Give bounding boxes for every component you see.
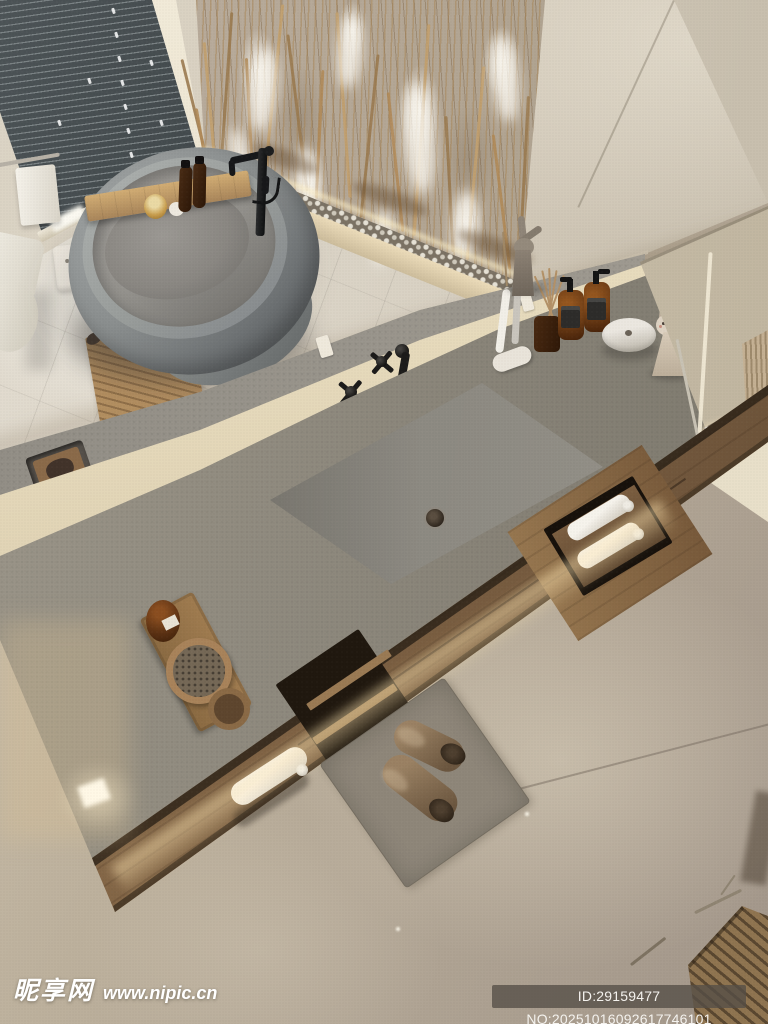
bottle-cap xyxy=(195,156,204,164)
hanging-towel xyxy=(15,164,61,226)
reed-diffuser-jar xyxy=(534,316,560,352)
sink-drain xyxy=(424,507,446,529)
floor-speck xyxy=(525,812,529,816)
bathroom-render: 昵享网 www.nipic.cn ID:29159477 NO:20251016… xyxy=(0,0,768,1024)
dispenser-pump-spout xyxy=(598,269,610,274)
dispenser-label xyxy=(587,298,606,320)
tap-hub xyxy=(376,356,387,367)
watermark-id-badge: ID:29159477 NO:20251016092617746101 xyxy=(492,985,746,1008)
ceramic-box-hole xyxy=(625,330,632,336)
candle-jar xyxy=(144,194,167,219)
towel-roll-end xyxy=(622,500,634,512)
amber-bottle xyxy=(193,162,207,208)
bottle-cap xyxy=(181,160,190,168)
handshower xyxy=(262,176,270,194)
watermark-site: 昵享网 www.nipic.cn xyxy=(13,976,217,1006)
tray-dish xyxy=(208,688,250,730)
floor-speck xyxy=(396,927,400,931)
rabbit-sculpture-body xyxy=(512,250,534,296)
floor-faucet-spout xyxy=(228,160,235,176)
floor-faucet-handle xyxy=(264,146,274,156)
watermark-site-url: www.nipic.cn xyxy=(103,983,217,1004)
watermark-site-name: 昵享网 xyxy=(13,976,94,1006)
amber-bottle xyxy=(178,166,193,212)
bunny-blush xyxy=(659,325,662,328)
dispenser-label xyxy=(561,306,580,328)
dispenser-pump-spout xyxy=(560,277,572,282)
